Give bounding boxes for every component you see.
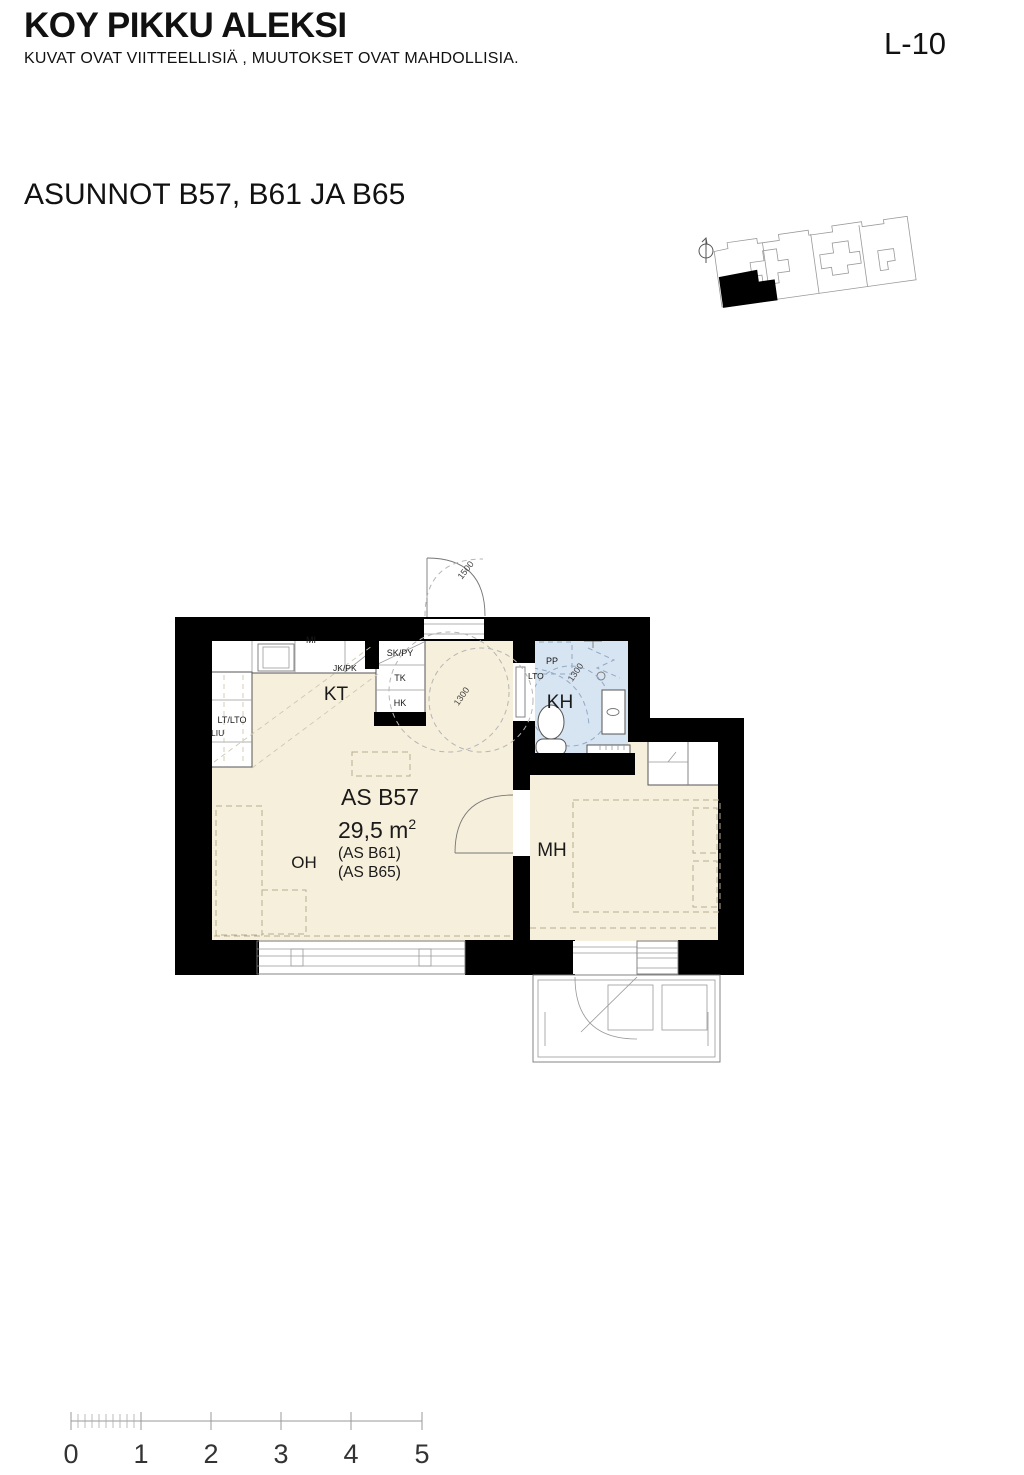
scale-label-2: 2 xyxy=(203,1439,218,1469)
page-title: ASUNNOT B57, B61 JA B65 xyxy=(24,178,405,212)
floor-plan: KT KH MH OH AS B57 29,5 m2 (AS B61) (AS … xyxy=(165,540,755,1075)
dim-entrance: 1500 xyxy=(456,559,476,581)
vanity xyxy=(602,690,625,734)
scale-label-3: 3 xyxy=(273,1439,288,1469)
label-liu: LIU xyxy=(211,728,224,738)
scale-label-4: 4 xyxy=(343,1439,358,1469)
room-label-bathroom: KH xyxy=(547,692,573,713)
balcony-furniture xyxy=(608,985,653,1030)
label-tk: TK xyxy=(394,673,406,683)
apartment-variant-1: (AS B61) xyxy=(338,845,401,862)
label-microwave: MI xyxy=(306,635,316,645)
project-title: KOY PIKKU ALEKSI xyxy=(24,6,347,46)
entrance-door xyxy=(424,558,485,639)
label-skpy: SK/PY xyxy=(387,648,414,658)
label-lto: LTO xyxy=(528,671,544,681)
sheet-number: L-10 xyxy=(884,26,946,62)
outside-cutout xyxy=(633,617,748,720)
bedroom-wardrobe xyxy=(648,740,722,785)
scale-label-5: 5 xyxy=(414,1439,429,1469)
room-label-kitchen: KT xyxy=(324,684,349,705)
balcony-furniture xyxy=(662,985,707,1030)
room-label-bedroom: MH xyxy=(537,840,567,861)
key-plan xyxy=(680,205,930,325)
highlighted-unit xyxy=(719,268,778,308)
north-arrow-icon xyxy=(699,238,713,263)
drawing-sheet: KOY PIKKU ALEKSI KUVAT OVAT VIITTEELLISI… xyxy=(0,0,1024,1475)
label-hk: HK xyxy=(394,698,407,708)
label-fridge: JK/PK xyxy=(333,663,357,673)
apartment-area: 29,5 m2 xyxy=(338,816,416,843)
balcony-door xyxy=(573,941,637,974)
scale-label-0: 0 xyxy=(63,1439,78,1469)
apartment-variant-2: (AS B65) xyxy=(338,864,401,881)
disclaimer-text: KUVAT OVAT VIITTEELLISIÄ , MUUTOKSET OVA… xyxy=(24,50,519,68)
bedroom-window xyxy=(637,941,678,974)
label-ltlto: LT/LTO xyxy=(217,715,246,725)
balcony xyxy=(533,975,720,1062)
label-washer: PP xyxy=(546,656,558,666)
scale-label-1: 1 xyxy=(133,1439,148,1469)
apartment-id: AS B57 xyxy=(341,784,419,810)
room-label-living: OH xyxy=(291,853,317,872)
scale-bar: 0 1 2 3 4 5 xyxy=(50,1395,440,1473)
living-room-window xyxy=(257,941,465,974)
